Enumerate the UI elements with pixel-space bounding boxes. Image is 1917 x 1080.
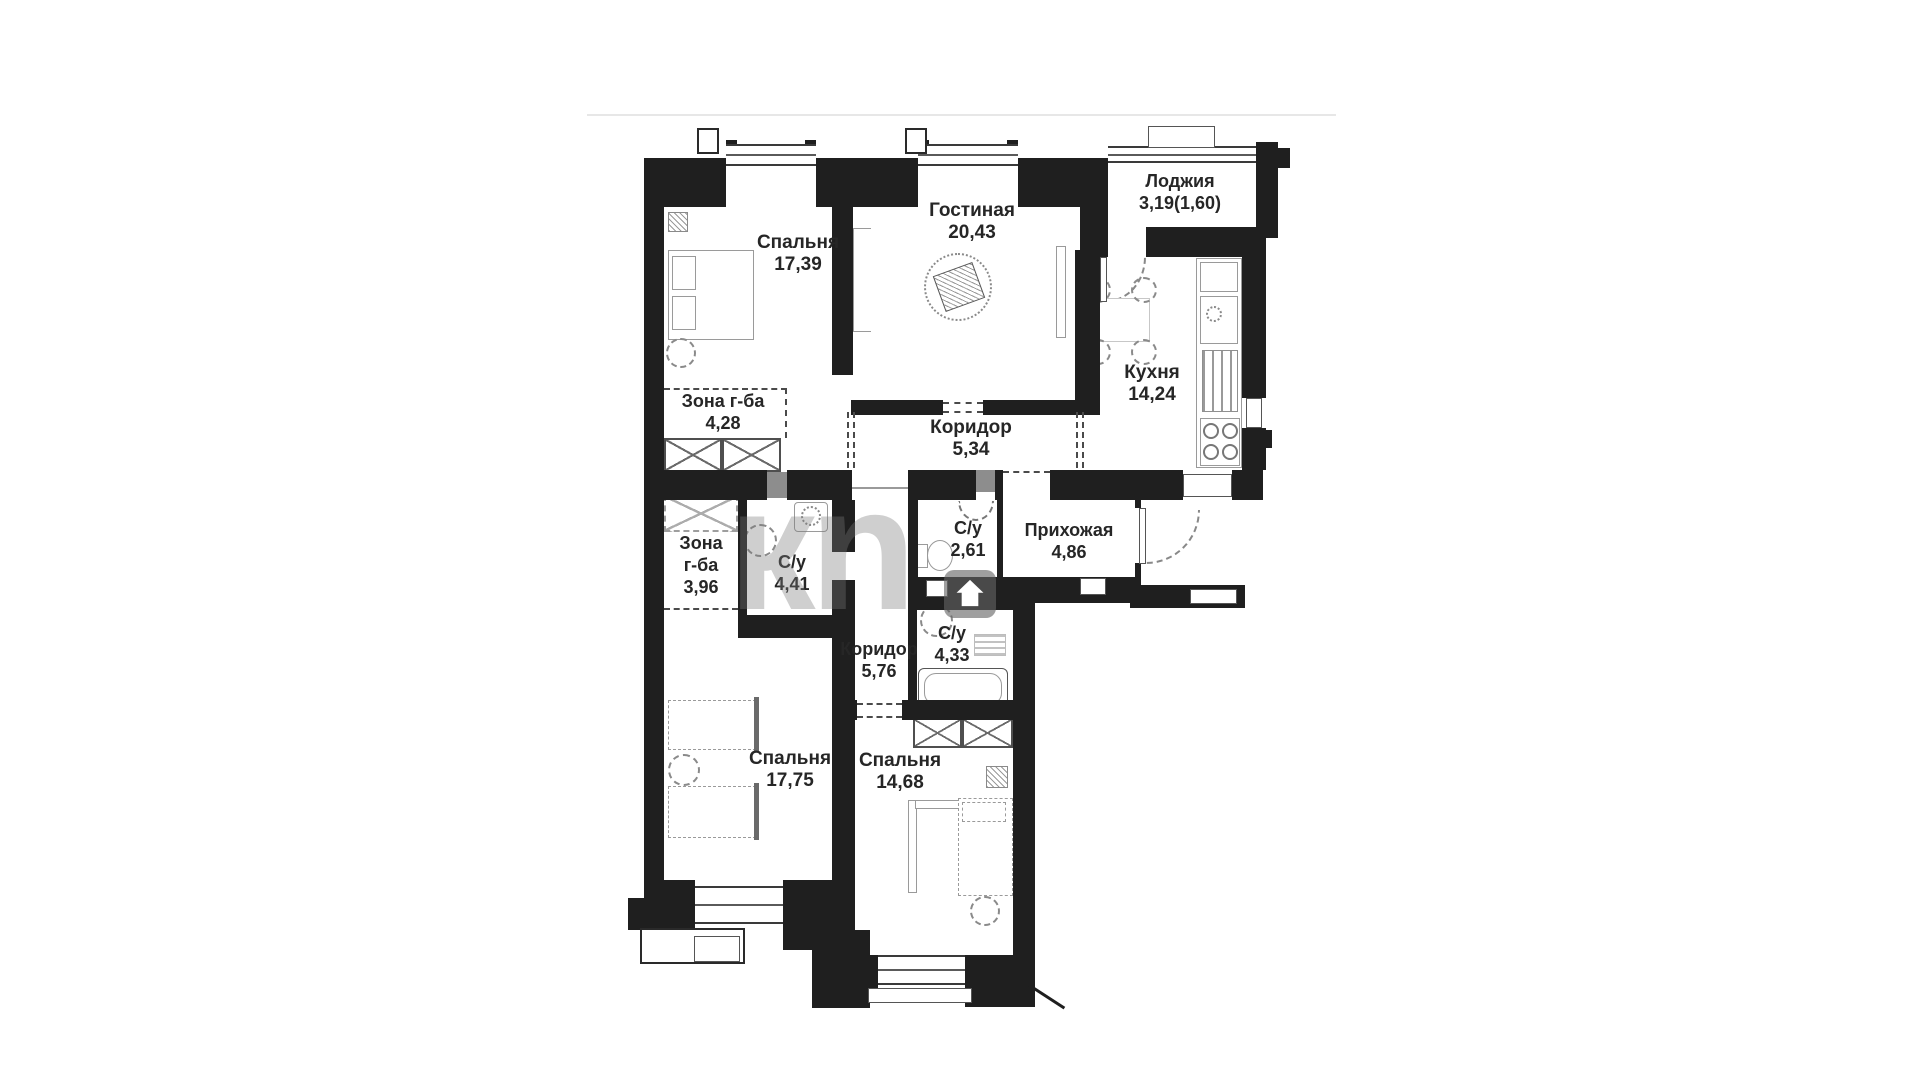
wall [644, 880, 695, 930]
headboard-icon [754, 697, 759, 752]
room-label-hallway: Прихожая 4,86 [999, 519, 1139, 563]
wc-door-opening [976, 470, 995, 492]
room-label-bedroom1: Спальня 17,39 [728, 232, 868, 276]
vent-niche [1246, 398, 1262, 428]
wall [908, 470, 976, 500]
loggia-door-leaf [1100, 257, 1107, 302]
living-opening-dash [943, 402, 983, 404]
watermark-house-icon [944, 570, 996, 618]
corridor-dashed-boundary [1082, 412, 1084, 468]
desk-icon [915, 800, 960, 809]
entrance-door-swing-arc [1146, 510, 1200, 564]
wardrobe-icon [664, 495, 738, 532]
room-name: Коридор [901, 417, 1041, 439]
tv-unit-icon [1056, 246, 1066, 338]
wardrobe-icon [913, 718, 962, 748]
wall [965, 955, 1035, 1007]
room-area: 4,86 [999, 541, 1139, 563]
bedroom-entry-dash [857, 703, 902, 705]
single-bed-icon [668, 786, 756, 838]
room-area: 4,33 [882, 644, 1022, 666]
door-sill [1080, 578, 1106, 595]
wall [995, 470, 1003, 500]
side-table-icon [970, 896, 1000, 926]
room-label-bedroom3: Спальня 14,68 [830, 750, 970, 794]
watermark-text: кn [728, 462, 910, 637]
room-name: Спальня [830, 750, 970, 772]
zone-dashed-line [664, 608, 738, 610]
corridor-dashed-boundary [1076, 412, 1078, 468]
wall [1256, 430, 1272, 448]
wall [1083, 227, 1100, 257]
bedroom-entry-dash [857, 716, 902, 718]
burner-icon [1203, 444, 1219, 460]
dining-table-icon [1098, 298, 1150, 342]
burner-icon [1222, 444, 1238, 460]
vent-icon [668, 212, 688, 232]
window [918, 144, 1018, 166]
window [695, 886, 783, 924]
kitchen-door-sill [1183, 474, 1232, 497]
wall [832, 205, 853, 375]
wall [1242, 238, 1266, 398]
wall [983, 400, 1078, 415]
wall [1276, 148, 1290, 168]
room-label-kitchen: Кухня 14,24 [1082, 362, 1222, 406]
living-opening-dash [943, 411, 983, 413]
window [878, 955, 965, 985]
burner-icon [1203, 423, 1219, 439]
room-area: 4,28 [653, 412, 793, 434]
wall [832, 700, 857, 720]
wall [902, 700, 1035, 720]
balcony-basket-inner [694, 936, 740, 962]
entrance-door-leaf [1139, 508, 1146, 564]
room-name: Спальня [728, 232, 868, 254]
wall [783, 880, 812, 950]
room-name: Зона г-ба [653, 390, 793, 412]
wardrobe-icon [664, 438, 722, 472]
wall [837, 955, 878, 988]
wall [628, 898, 646, 930]
kitchen-cabinet-icon [1200, 262, 1238, 292]
burner-icon [1222, 423, 1238, 439]
room-area: 3,19(1,60) [1110, 192, 1250, 214]
house-glyph [954, 578, 986, 610]
side-table-icon [668, 754, 700, 786]
wall [1135, 563, 1141, 577]
wall [1232, 470, 1263, 500]
room-label-wardrobe1: Зона г-ба 4,28 [653, 390, 793, 434]
wall [1256, 142, 1278, 238]
room-label-living: Гостиная 20,43 [902, 200, 1042, 244]
page-divider-line [587, 114, 1336, 116]
room-area: 17,39 [728, 254, 868, 276]
loggia-window [1108, 146, 1256, 163]
hallway-opening-dash [1003, 471, 1050, 473]
room-area: 5,34 [901, 439, 1041, 461]
wall [1050, 470, 1183, 500]
chair-icon [1131, 277, 1157, 303]
pillow-icon [962, 802, 1006, 822]
room-area: 14,68 [830, 772, 970, 794]
pillow-icon [672, 296, 696, 330]
floorplan-canvas: Спальня 17,39 Гостиная 20,43 Лоджия 3,19… [0, 0, 1917, 1080]
room-name: Гостиная [902, 200, 1042, 222]
window-sill [868, 988, 972, 1003]
wall [1146, 227, 1256, 257]
room-area: 14,24 [1082, 384, 1222, 406]
window [726, 144, 816, 166]
room-name: Кухня [1082, 362, 1222, 384]
armchair-icon [666, 338, 696, 368]
vent-shaft [905, 128, 927, 154]
room-label-corridor1: Коридор 5,34 [901, 417, 1041, 461]
room-label-loggia: Лоджия 3,19(1,60) [1110, 170, 1250, 214]
wall [851, 400, 943, 415]
room-name: Прихожая [999, 519, 1139, 541]
room-name: Лоджия [1110, 170, 1250, 192]
vent-icon [986, 766, 1008, 788]
room-area: 20,43 [902, 222, 1042, 244]
vent-shaft [697, 128, 719, 154]
wardrobe-icon [962, 718, 1013, 748]
loggia-parapet [1148, 126, 1215, 148]
single-bed-icon [668, 700, 756, 750]
desk-icon [908, 800, 917, 893]
sink-basin-icon [1206, 306, 1222, 322]
wall [1135, 500, 1141, 508]
wall [812, 880, 855, 930]
pillow-icon [672, 256, 696, 290]
landing-sill [1190, 589, 1237, 604]
